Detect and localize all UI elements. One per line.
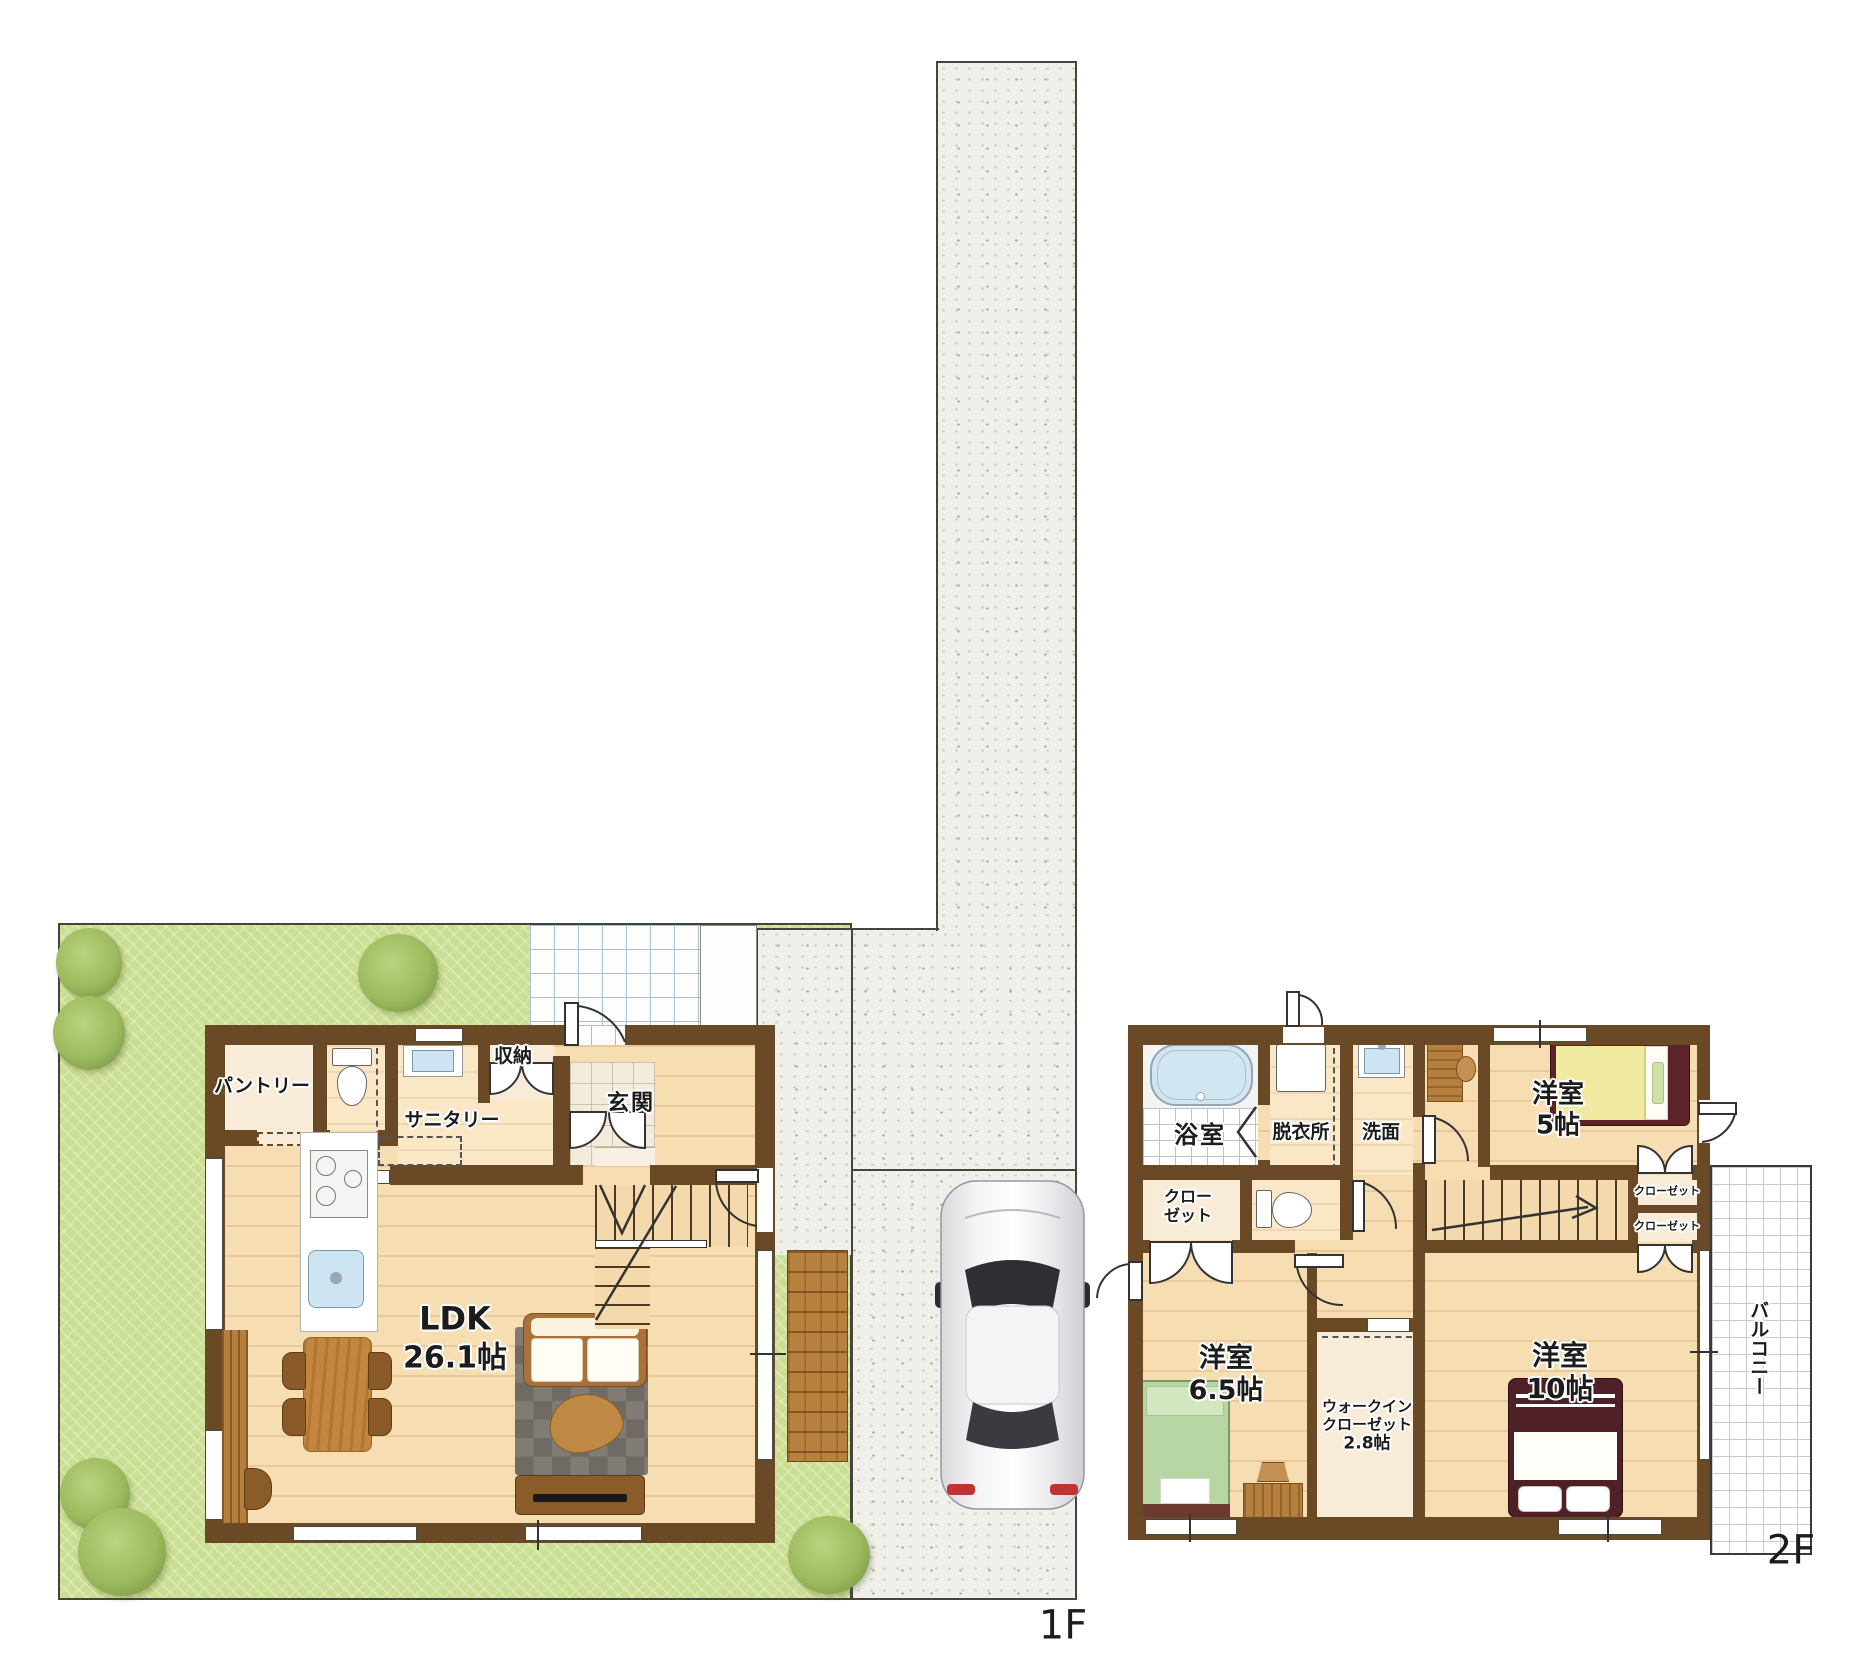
hall-desk-stool <box>1456 1056 1476 1082</box>
dining-table <box>303 1337 372 1452</box>
wall-dressing-washroom <box>1340 1040 1353 1175</box>
driveway-joint <box>852 1169 1077 1171</box>
wall-genkan-left <box>553 1056 570 1167</box>
bed5-pillow <box>1652 1062 1664 1104</box>
window-left-lower <box>205 1430 223 1520</box>
window-bedroom65-bottom <box>1145 1519 1237 1535</box>
label-bath: 浴室 <box>1174 1121 1226 1149</box>
closet-room-line1: クロー <box>1164 1187 1212 1206</box>
tree-shrub <box>358 934 438 1012</box>
car <box>935 1178 1090 1512</box>
bedroom65-size: 6.5帖 <box>1189 1375 1264 1406</box>
tree-shrub <box>788 1516 870 1594</box>
label-closet-lower: クローゼット <box>1634 1221 1700 1234</box>
window-bedroom5-top <box>1493 1027 1587 1042</box>
wall-2f-mid-right <box>1490 1165 1638 1180</box>
label-bedroom10: 洋室 10帖 <box>1527 1339 1594 1405</box>
wall-row-bottom <box>225 1130 257 1146</box>
wall-wic-right <box>1413 1253 1425 1517</box>
label-bedroom5: 洋室 5帖 <box>1532 1079 1584 1140</box>
tree-shrub <box>78 1508 166 1596</box>
driveway-edge <box>936 61 938 931</box>
bed10-pillow <box>1518 1486 1562 1512</box>
wall-wic-left <box>1307 1253 1317 1517</box>
wall-washroom-hall <box>1413 1040 1425 1117</box>
backdoor-opening <box>757 1168 773 1232</box>
wall-toilet1f-right <box>385 1025 398 1137</box>
ldk-size: 26.1帖 <box>403 1340 507 1375</box>
wall-washroom-hall-b <box>1413 1163 1425 1180</box>
entrance-porch <box>530 925 700 1025</box>
bedroom65-desk <box>1243 1483 1303 1518</box>
wall-1f-bottom <box>205 1523 775 1543</box>
dining-chair <box>368 1352 392 1390</box>
driveway-upper <box>757 929 1077 1027</box>
balcony-slider <box>1699 1250 1710 1460</box>
wall-wic-top-a <box>1317 1318 1367 1332</box>
wall-toilet2f-right <box>1340 1175 1353 1240</box>
wic-door-opening <box>1367 1318 1410 1332</box>
wood-deck <box>787 1250 848 1462</box>
stairs-1f-upper <box>595 1185 748 1247</box>
genkan-step <box>595 1147 655 1166</box>
wall-1f-top-right <box>625 1025 775 1045</box>
label-closet-upper: クローゼット <box>1634 1186 1700 1199</box>
wall-2f-row2-a <box>1143 1240 1150 1253</box>
label-balcony: バルコニー <box>1747 1301 1769 1396</box>
wall-2f-mid-end <box>1692 1165 1697 1180</box>
stove-burner <box>316 1156 336 1176</box>
label-bedroom65: 洋室 6.5帖 <box>1189 1343 1264 1407</box>
stairs-2f <box>1425 1180 1628 1240</box>
kitchen-counter-dashed <box>378 1136 462 1166</box>
label-sanitary: サニタリー <box>404 1109 499 1131</box>
sofa-cushion <box>531 1338 583 1382</box>
driveway-edge <box>937 61 1077 63</box>
ldk-name: LDK <box>419 1299 491 1337</box>
stove-burner <box>316 1186 336 1206</box>
bed10-sheet <box>1514 1432 1617 1480</box>
driveway-joint <box>851 929 853 1600</box>
label-floor-1f: 1F <box>1039 1602 1087 1649</box>
floor-plan-canvas: パントリー サニタリー 収納 玄関 LDK 26.1帖 1F 浴室 脱衣所 洗面… <box>0 0 1858 1675</box>
washroom-basin <box>1364 1048 1400 1074</box>
wall-storage-left <box>478 1025 490 1103</box>
label-washroom: 洗面 <box>1362 1121 1400 1143</box>
window-left-upper <box>205 1158 223 1330</box>
toilet2f-tank <box>1256 1190 1272 1228</box>
dining-chair <box>282 1398 306 1436</box>
label-storage: 収納 <box>494 1045 532 1067</box>
bedroom10-name: 洋室 <box>1532 1339 1588 1372</box>
wall-bath-dressing <box>1258 1040 1270 1105</box>
wall-2f-row2-b <box>1232 1240 1295 1253</box>
wall-hall-bedroom5 <box>1478 1040 1490 1167</box>
wall-pantry-right <box>313 1025 327 1137</box>
wall-closet-divider <box>1638 1205 1697 1213</box>
wall-2f-left <box>1128 1025 1143 1540</box>
label-ldk: LDK 26.1帖 <box>403 1300 507 1376</box>
wall-2f-row2-d <box>1692 1240 1697 1253</box>
wall-closetroom-right <box>1240 1175 1252 1240</box>
driveway-edge <box>757 928 939 930</box>
bedroom5-name: 洋室 <box>1532 1079 1584 1109</box>
closet-room-line2: ゼット <box>1164 1206 1212 1225</box>
bedroom65-name: 洋室 <box>1199 1343 1253 1374</box>
driveway-edge <box>852 1598 1077 1600</box>
wall-sanitary-bottom <box>390 1165 583 1185</box>
bed65-sheet <box>1160 1478 1210 1504</box>
wic-line2: クローゼット <box>1322 1415 1412 1433</box>
wic-hanger-dashed <box>1322 1336 1412 1338</box>
dining-chair <box>282 1352 306 1390</box>
dressing-door-opening <box>1283 1027 1324 1043</box>
window-bottom-right <box>525 1526 642 1541</box>
bedroom10-size: 10帖 <box>1527 1372 1594 1405</box>
bedroom5-size: 5帖 <box>1536 1110 1580 1140</box>
approach-walkway <box>700 925 757 1027</box>
wall-wic-top-b <box>1410 1318 1420 1332</box>
wic-line3: 2.8帖 <box>1343 1434 1390 1454</box>
wall-stairs2-left <box>1413 1180 1425 1253</box>
tree-shrub <box>53 996 125 1070</box>
window-bottom-left <box>293 1526 417 1541</box>
window-right-large <box>757 1250 773 1460</box>
balcony-door-opening <box>1699 1100 1710 1143</box>
sanitary-basin <box>412 1050 454 1072</box>
dining-chair <box>368 1398 392 1436</box>
bathtub-drain <box>1196 1092 1205 1101</box>
label-wic: ウォークイン クローゼット 2.8帖 <box>1322 1398 1412 1453</box>
stairs-railing <box>595 1240 707 1248</box>
bed10-pillow <box>1566 1486 1610 1512</box>
window-top <box>415 1028 463 1042</box>
wall-2f-row2-c <box>1413 1240 1638 1253</box>
label-dressing: 脱衣所 <box>1272 1121 1329 1143</box>
stairs-1f-lower <box>595 1247 650 1329</box>
label-entrance: 玄関 <box>607 1091 655 1117</box>
window-bedroom10-bottom <box>1558 1519 1662 1535</box>
tree-shrub <box>56 928 122 998</box>
label-pantry: パントリー <box>214 1075 310 1097</box>
label-floor-2f: 2F <box>1767 1527 1815 1574</box>
kitchen-faucet <box>330 1272 342 1284</box>
driveway-strip <box>937 63 1077 931</box>
wic-line1: ウォークイン <box>1322 1397 1412 1415</box>
label-closet-room: クロー ゼット <box>1164 1188 1212 1226</box>
wall-hall-bottom <box>650 1165 755 1185</box>
sofa-cushion <box>587 1338 639 1382</box>
dressing-dashed-line <box>1333 1048 1335 1170</box>
washing-machine <box>1276 1044 1326 1092</box>
stove-burner <box>344 1170 362 1188</box>
bedroom65-stool <box>1257 1462 1289 1482</box>
tv-screen <box>533 1494 627 1502</box>
toilet1f-tank <box>332 1048 372 1066</box>
